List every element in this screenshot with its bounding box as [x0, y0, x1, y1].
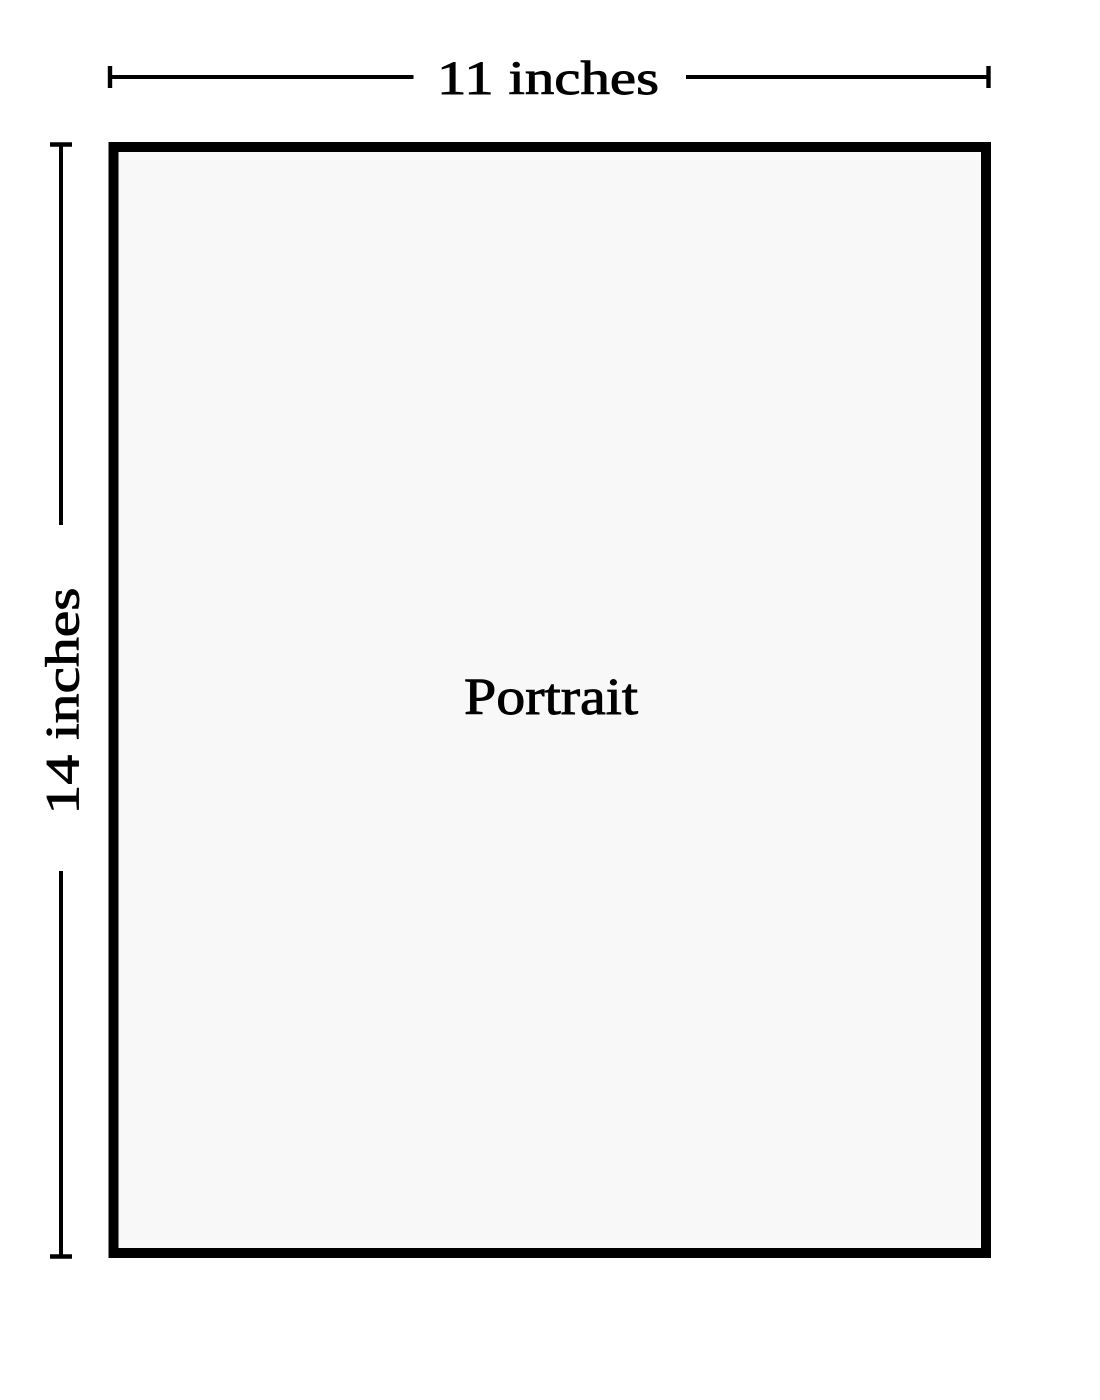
svg-text:11 inches: 11 inches	[437, 52, 659, 105]
svg-text:Portrait: Portrait	[464, 669, 639, 726]
svg-text:14 inches: 14 inches	[37, 588, 90, 815]
